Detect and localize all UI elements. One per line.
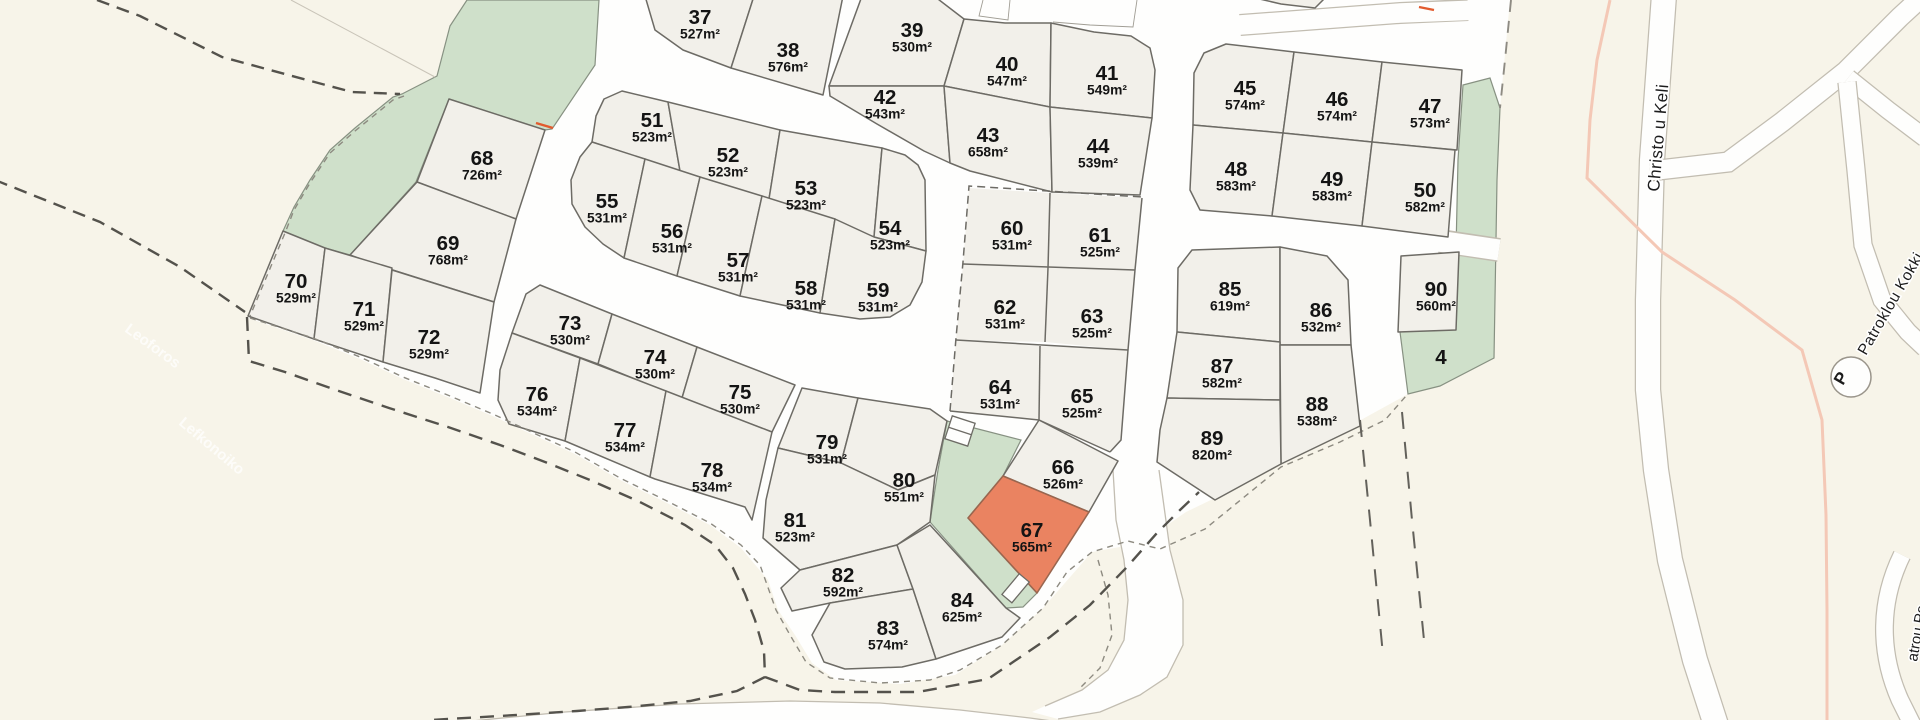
svg-text:583m²: 583m² — [1216, 179, 1256, 194]
svg-text:539m²: 539m² — [1078, 156, 1118, 171]
svg-text:531m²: 531m² — [992, 238, 1032, 253]
svg-text:525m²: 525m² — [1062, 406, 1102, 421]
svg-text:619m²: 619m² — [1210, 299, 1250, 314]
svg-text:523m²: 523m² — [632, 130, 672, 145]
svg-text:531m²: 531m² — [985, 317, 1025, 332]
svg-text:820m²: 820m² — [1192, 448, 1232, 463]
svg-text:530m²: 530m² — [550, 333, 590, 348]
svg-text:4: 4 — [1435, 346, 1447, 369]
svg-text:525m²: 525m² — [1072, 326, 1112, 341]
svg-text:547m²: 547m² — [987, 74, 1027, 89]
svg-text:574m²: 574m² — [1317, 109, 1357, 124]
svg-text:523m²: 523m² — [786, 198, 826, 213]
svg-text:523m²: 523m² — [708, 165, 748, 180]
svg-text:534m²: 534m² — [605, 440, 645, 455]
svg-text:768m²: 768m² — [428, 253, 468, 268]
svg-text:560m²: 560m² — [1416, 299, 1456, 314]
svg-text:573m²: 573m² — [1410, 116, 1450, 131]
svg-text:523m²: 523m² — [870, 238, 910, 253]
svg-text:582m²: 582m² — [1405, 200, 1445, 215]
svg-text:530m²: 530m² — [635, 367, 675, 382]
svg-text:529m²: 529m² — [344, 319, 384, 334]
svg-text:565m²: 565m² — [1012, 540, 1052, 555]
svg-text:531m²: 531m² — [858, 300, 898, 315]
svg-text:531m²: 531m² — [786, 298, 826, 313]
svg-text:583m²: 583m² — [1312, 189, 1352, 204]
svg-text:527m²: 527m² — [680, 27, 720, 42]
svg-text:726m²: 726m² — [462, 168, 502, 183]
svg-text:531m²: 531m² — [980, 397, 1020, 412]
svg-text:531m²: 531m² — [718, 270, 758, 285]
svg-text:574m²: 574m² — [1225, 98, 1265, 113]
svg-text:538m²: 538m² — [1297, 414, 1337, 429]
svg-text:530m²: 530m² — [892, 40, 932, 55]
svg-text:582m²: 582m² — [1202, 376, 1242, 391]
svg-text:551m²: 551m² — [884, 490, 924, 505]
svg-text:530m²: 530m² — [720, 402, 760, 417]
svg-text:532m²: 532m² — [1301, 320, 1341, 335]
svg-text:531m²: 531m² — [807, 452, 847, 467]
svg-text:529m²: 529m² — [276, 291, 316, 306]
svg-text:529m²: 529m² — [409, 347, 449, 362]
svg-text:525m²: 525m² — [1080, 245, 1120, 260]
svg-text:592m²: 592m² — [823, 585, 863, 600]
svg-text:526m²: 526m² — [1043, 477, 1083, 492]
svg-text:534m²: 534m² — [692, 480, 732, 495]
svg-text:549m²: 549m² — [1087, 83, 1127, 98]
svg-text:625m²: 625m² — [942, 610, 982, 625]
svg-text:531m²: 531m² — [652, 241, 692, 256]
svg-text:531m²: 531m² — [587, 211, 627, 226]
svg-text:576m²: 576m² — [768, 60, 808, 75]
svg-text:523m²: 523m² — [775, 530, 815, 545]
svg-text:658m²: 658m² — [968, 145, 1008, 160]
svg-text:543m²: 543m² — [865, 107, 905, 122]
svg-text:574m²: 574m² — [868, 638, 908, 653]
svg-text:534m²: 534m² — [517, 404, 557, 419]
